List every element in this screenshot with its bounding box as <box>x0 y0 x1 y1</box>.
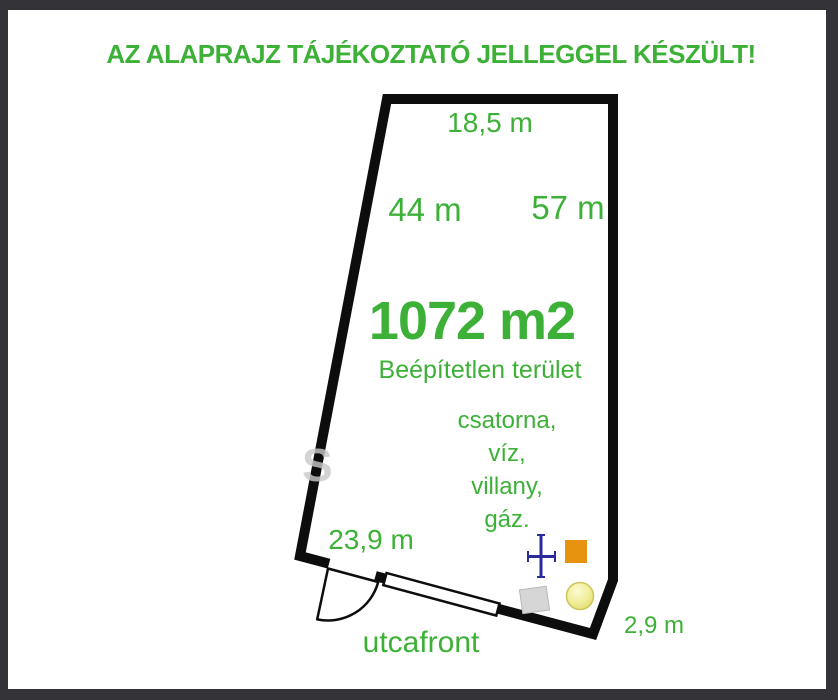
utility-sewer: csatorna, <box>458 404 557 437</box>
yellow-circle-marker <box>567 583 594 610</box>
utility-electricity: villany, <box>458 470 557 503</box>
dimension-left-side: 44 m <box>388 192 461 228</box>
dimension-right-side: 57 m <box>531 190 604 226</box>
dimension-street-front: 23,9 m <box>328 525 414 556</box>
utility-gas: gáz. <box>458 503 557 536</box>
dimension-top: 18,5 m <box>447 108 533 139</box>
dimension-chamfer: 2,9 m <box>624 613 684 639</box>
land-status: Beépítetlen terület <box>379 357 582 385</box>
orange-square-marker <box>565 540 587 563</box>
gray-square-marker <box>519 586 549 614</box>
utilities-list: csatorna, víz, villany, gáz. <box>458 404 557 536</box>
street-front-label: utcafront <box>363 626 480 659</box>
watermark-glyph: S <box>302 440 333 491</box>
utility-water: víz, <box>458 437 557 470</box>
floorplan-image: AZ ALAPRAJZ TÁJÉKOZTATÓ JELLEGGEL KÉSZÜL… <box>0 0 838 700</box>
disclaimer-title: AZ ALAPRAJZ TÁJÉKOZTATÓ JELLEGGEL KÉSZÜL… <box>106 40 755 69</box>
plot-area: 1072 m2 <box>369 292 575 351</box>
